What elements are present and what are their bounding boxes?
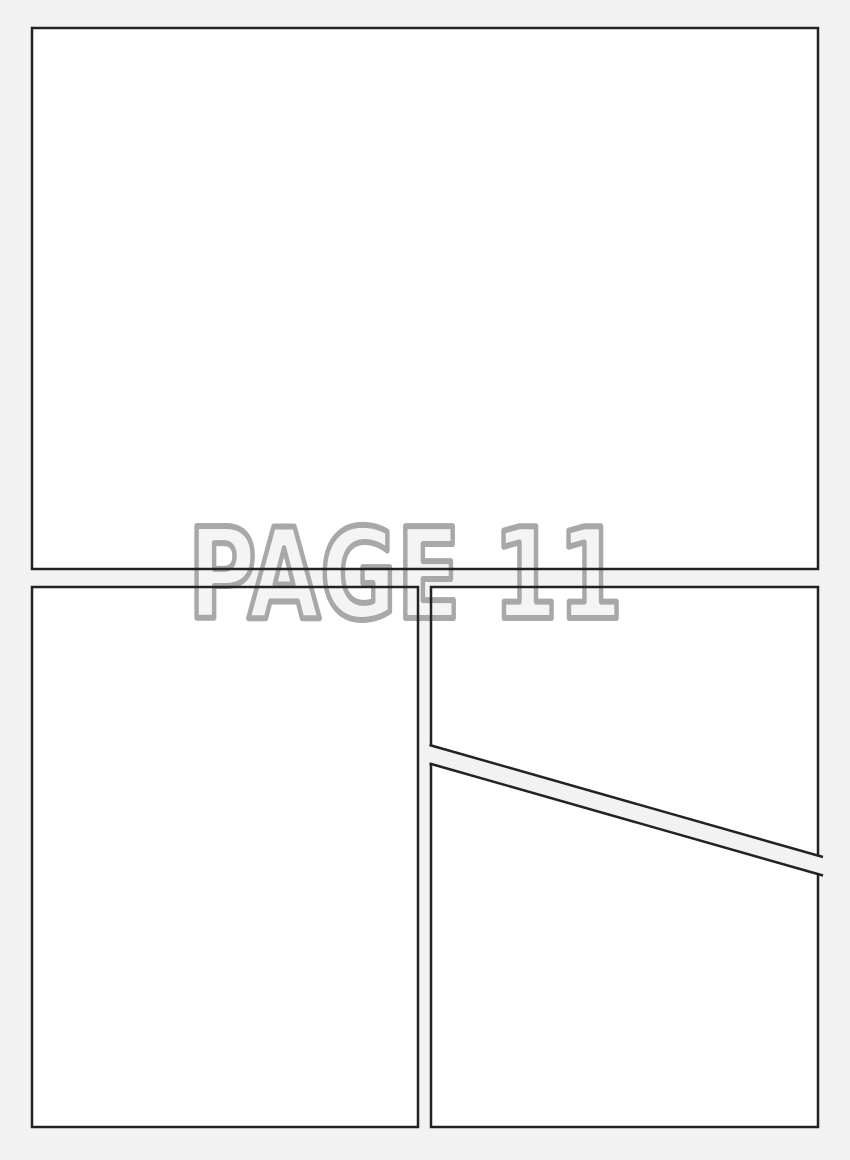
panel-bottom-left-fill bbox=[32, 587, 418, 1127]
comic-page-canvas: PAGE 11 bbox=[0, 0, 850, 1160]
comic-page-template: PAGE 11 bbox=[0, 0, 850, 1160]
panel-top-fill bbox=[32, 28, 818, 569]
page-number-watermark: PAGE 11 bbox=[188, 501, 623, 648]
